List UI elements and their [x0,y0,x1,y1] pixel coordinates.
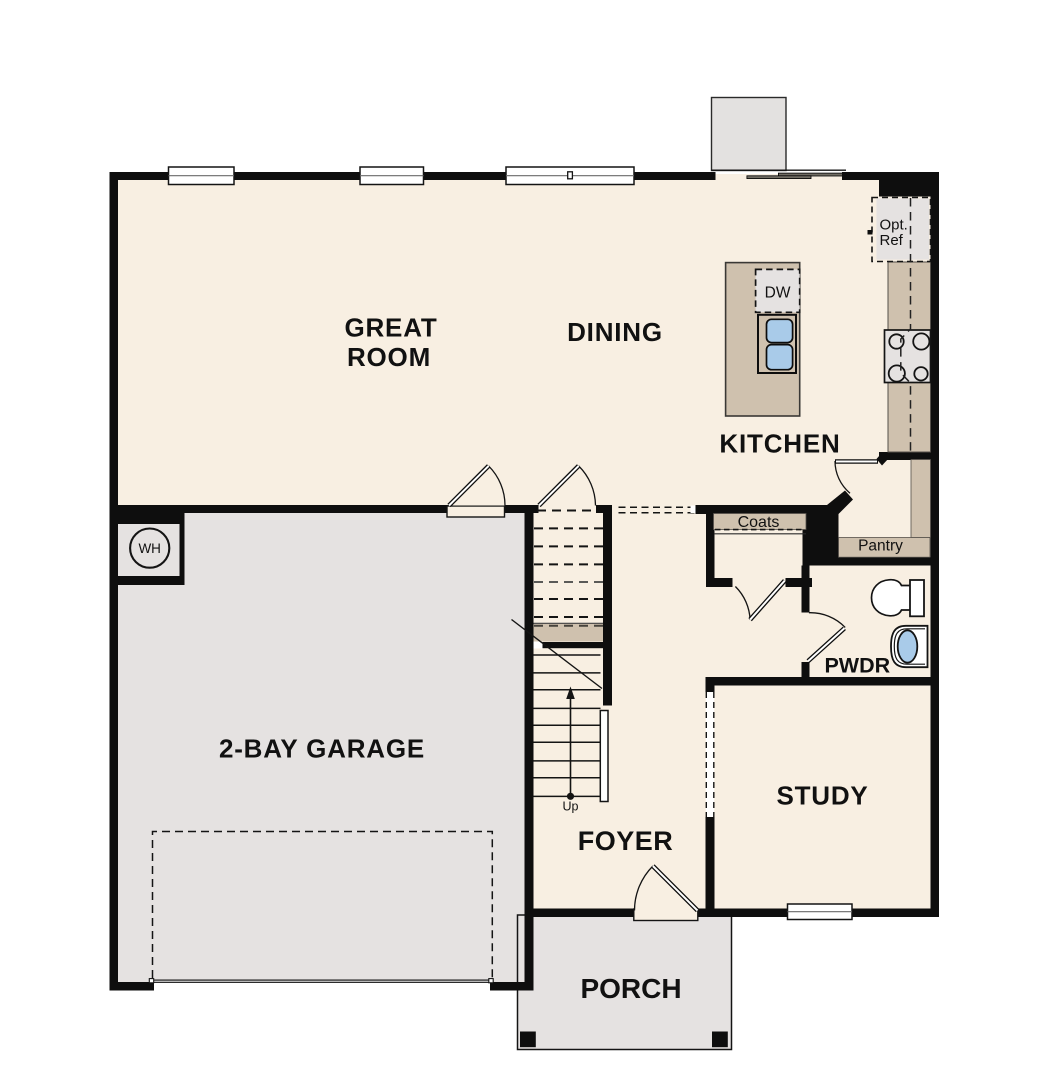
svg-text:2-BAY GARAGE: 2-BAY GARAGE [219,734,425,764]
svg-text:WH: WH [138,541,161,556]
svg-text:Ref: Ref [880,232,904,249]
svg-text:Opt.: Opt. [880,217,908,234]
svg-text:PWDR: PWDR [824,653,890,677]
svg-text:DW: DW [765,285,791,302]
svg-text:PORCH: PORCH [580,973,681,1004]
svg-text:DINING: DINING [567,317,663,347]
svg-text:GREAT: GREAT [344,313,437,343]
svg-text:FOYER: FOYER [578,826,674,856]
svg-text:ROOM: ROOM [347,342,431,372]
svg-text:STUDY: STUDY [776,781,868,811]
svg-text:KITCHEN: KITCHEN [719,429,840,459]
svg-text:Up: Up [563,800,579,814]
svg-text:Coats: Coats [738,514,780,531]
svg-text:Pantry: Pantry [858,538,903,555]
